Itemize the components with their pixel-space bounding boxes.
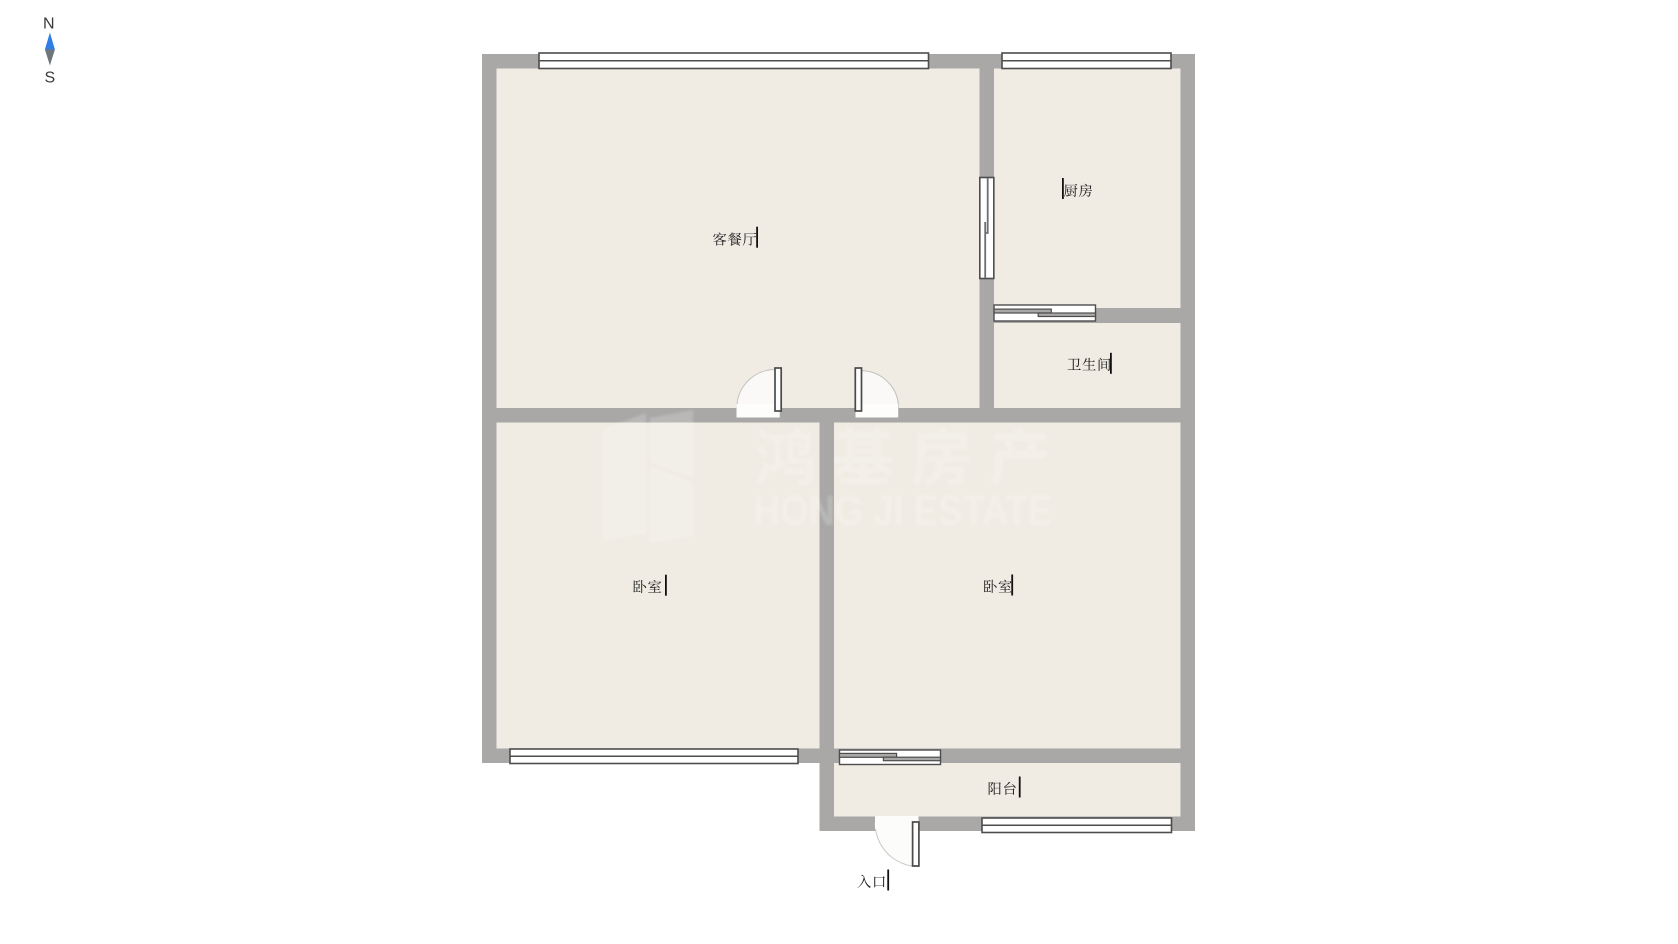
svg-text:HONG JI ESTATE: HONG JI ESTATE	[754, 488, 1052, 535]
svg-text:S: S	[45, 70, 56, 87]
svg-text:N: N	[43, 16, 55, 33]
